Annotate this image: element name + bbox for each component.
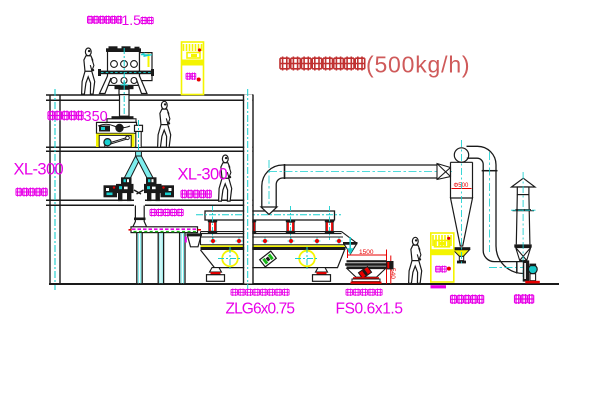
svg-text:XL-300: XL-300 [178,166,228,184]
svg-text:1.5: 1.5 [122,12,142,28]
svg-text:(500kg/h): (500kg/h) [366,52,470,78]
svg-text:540: 540 [389,268,396,279]
svg-text:350: 350 [84,109,108,125]
svg-text:ZLG6x0.75: ZLG6x0.75 [226,301,295,318]
svg-text:FS0.6x1.5: FS0.6x1.5 [336,301,403,318]
svg-text:1500: 1500 [359,249,374,256]
svg-text:XL-300: XL-300 [14,161,64,179]
